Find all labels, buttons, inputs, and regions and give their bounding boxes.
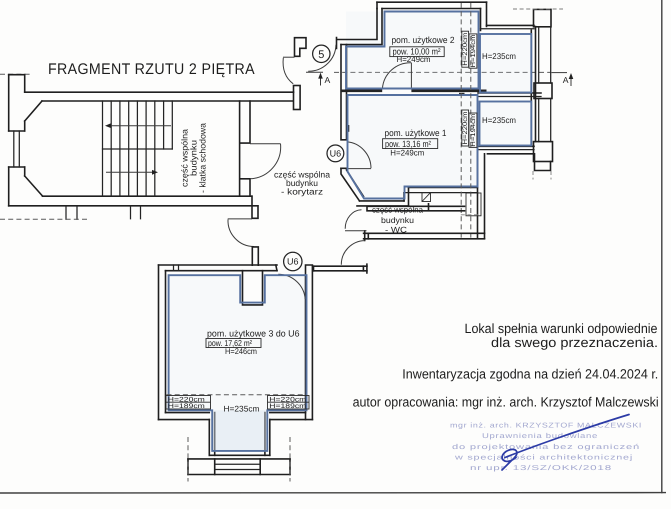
svg-text:Inwentaryzacja zgodna na dzień: Inwentaryzacja zgodna na dzień 24.04.202…	[402, 366, 658, 381]
svg-text:- klatka schodowa: - klatka schodowa	[198, 123, 208, 193]
svg-text:pom. użytkowe 3 do U6: pom. użytkowe 3 do U6	[207, 328, 300, 338]
svg-text:Lokal spełnia warunki odpowied: Lokal spełnia warunki odpowiednie	[465, 321, 658, 336]
svg-text:dla swego przeznaczenia.: dla swego przeznaczenia.	[491, 335, 658, 350]
svg-text:H=249cm: H=249cm	[390, 149, 424, 158]
svg-text:U6: U6	[330, 149, 342, 159]
svg-text:pom. użytkowe 2: pom. użytkowe 2	[392, 35, 455, 45]
svg-text:A: A	[325, 75, 331, 85]
svg-text:H=249cm: H=249cm	[397, 55, 431, 64]
svg-text:H=246cm: H=246cm	[225, 347, 257, 356]
svg-text:- WC: - WC	[385, 226, 407, 235]
svg-text:H=235cm: H=235cm	[224, 404, 260, 413]
svg-text:nr upr. 13/SZ/OKK/2018: nr upr. 13/SZ/OKK/2018	[470, 464, 612, 472]
svg-text:U6: U6	[287, 257, 299, 267]
svg-text:H=220cm: H=220cm	[462, 32, 469, 66]
svg-text:H=220cm: H=220cm	[462, 111, 469, 145]
svg-text:- korytarz: - korytarz	[281, 187, 323, 197]
svg-text:FRAGMENT RZUTU 2 PIĘTRA: FRAGMENT RZUTU 2 PIĘTRA	[48, 61, 255, 78]
svg-text:H=235cm: H=235cm	[482, 115, 516, 125]
svg-text:budynku: budynku	[381, 216, 414, 225]
svg-text:5: 5	[318, 49, 324, 61]
svg-text:H=189cm: H=189cm	[168, 403, 206, 410]
svg-text:mgr inż. arch. KRZYSZTOF MALCZ: mgr inż. arch. KRZYSZTOF MALCZEWSKI	[450, 422, 642, 430]
svg-text:A: A	[563, 75, 569, 85]
svg-text:autor opracowania: mgr inż. ar: autor opracowania: mgr inż. arch. Krzysz…	[353, 395, 659, 410]
svg-text:H=235cm: H=235cm	[482, 51, 516, 61]
svg-text:w specjalności architektoniczn: w specjalności architektonicznej	[453, 454, 633, 462]
svg-text:H=189cm: H=189cm	[269, 403, 307, 410]
svg-text:część wspólna: część wspólna	[372, 206, 423, 215]
svg-text:Uprawnienia budowlane: Uprawnienia budowlane	[482, 432, 598, 440]
svg-text:pow. 13,16 m²: pow. 13,16 m²	[385, 139, 431, 149]
svg-text:H=194cm: H=194cm	[470, 34, 477, 68]
svg-text:pom. użytkowe 1: pom. użytkowe 1	[385, 128, 447, 138]
svg-text:do projektowania bez ogranicze: do projektowania bez ograniczeń	[452, 443, 640, 451]
svg-text:H=194cm: H=194cm	[470, 113, 477, 147]
